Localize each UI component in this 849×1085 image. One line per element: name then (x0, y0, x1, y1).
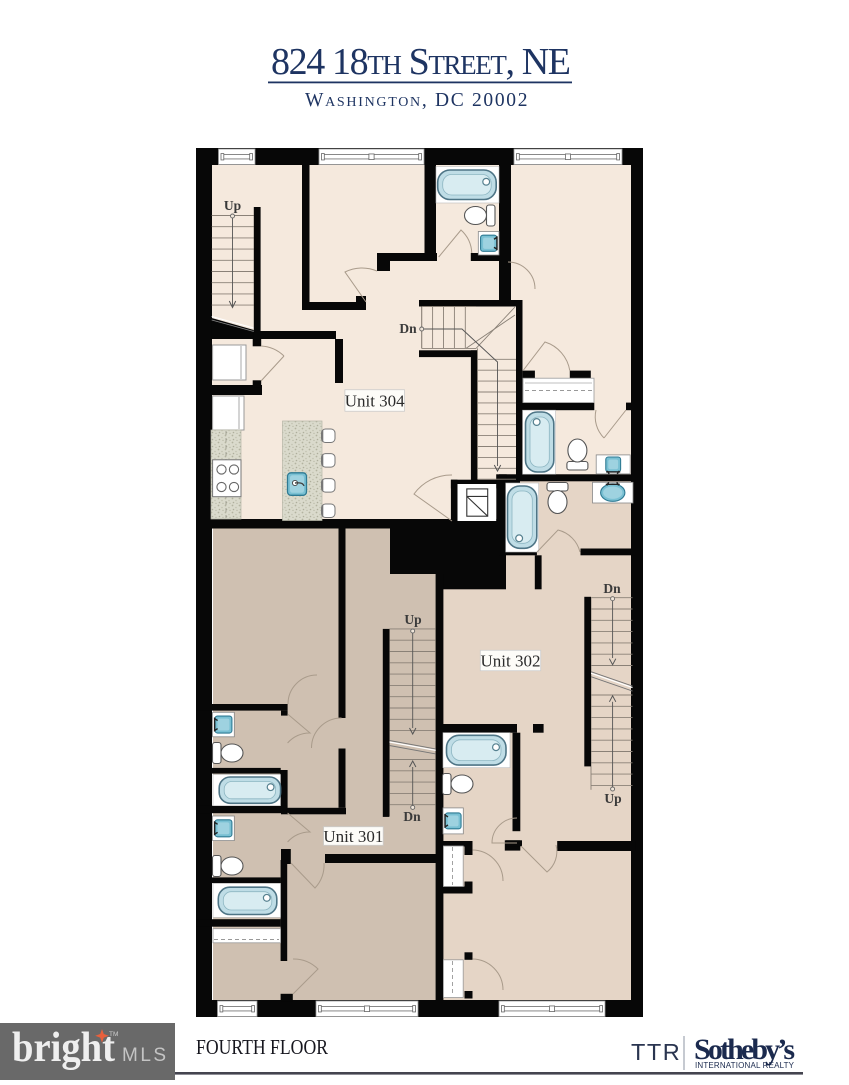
svg-text:Unit 301: Unit 301 (323, 827, 383, 846)
svg-text:FOURTH FLOOR: FOURTH FLOOR (196, 1035, 329, 1059)
svg-text:824 18th Street, NE: 824 18th Street, NE (271, 41, 571, 83)
svg-text:Unit 304: Unit 304 (345, 391, 405, 410)
svg-text:TTR: TTR (631, 1039, 681, 1065)
svg-text:Dn: Dn (603, 581, 621, 596)
svg-text:Washington, DC 20002: Washington, DC 20002 (305, 90, 529, 111)
svg-text:INTERNATIONAL REALTY: INTERNATIONAL REALTY (695, 1061, 795, 1070)
svg-text:Up: Up (604, 791, 621, 806)
svg-text:MLS: MLS (122, 1045, 169, 1066)
svg-text:Dn: Dn (399, 321, 417, 336)
svg-text:bright: bright (12, 1025, 115, 1071)
svg-text:Unit 302: Unit 302 (481, 651, 541, 670)
svg-text:TM: TM (109, 1031, 118, 1038)
svg-text:Up: Up (224, 198, 241, 213)
svg-text:Dn: Dn (403, 809, 421, 824)
svg-text:Up: Up (404, 612, 421, 627)
